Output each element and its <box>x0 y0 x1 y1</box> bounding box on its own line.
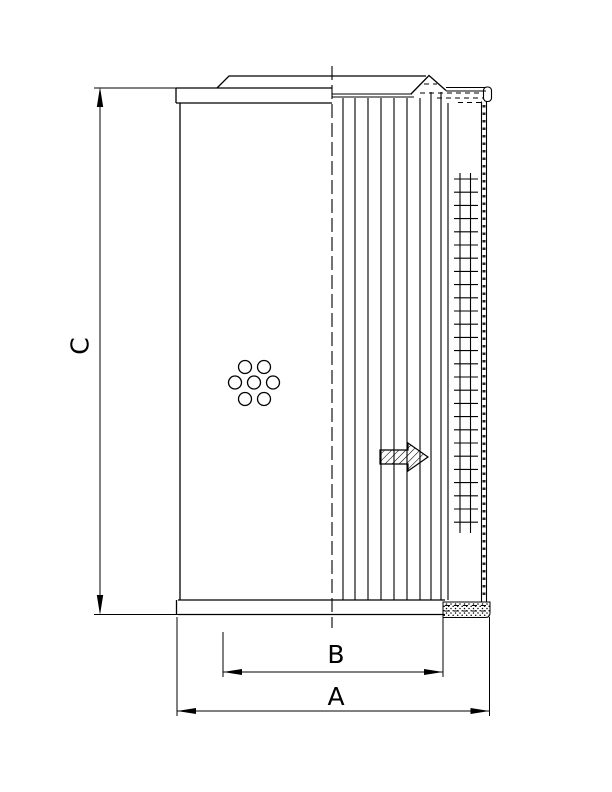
support-mesh-grid <box>454 173 478 533</box>
top-cap-lid <box>217 76 426 88</box>
outer-wrap-strip <box>482 102 487 603</box>
drain-holes <box>229 361 280 406</box>
dim-c-arrow-up-icon <box>97 87 103 107</box>
filter-element-technical-drawing: C <box>0 0 612 792</box>
drain-hole <box>258 393 271 406</box>
filter-body <box>176 66 492 628</box>
dimension-c: C <box>66 87 179 615</box>
top-cap-crimp-peak <box>411 76 446 95</box>
collar-rim-end <box>484 87 492 102</box>
bottom-cap-wrap-block <box>443 602 490 618</box>
bottom-end-cap <box>177 600 491 618</box>
dimension-b: B <box>223 617 443 677</box>
pleated-media <box>343 92 448 600</box>
dim-a-arrow-right-icon <box>471 708 490 714</box>
dim-b-arrow-right-icon <box>424 669 443 675</box>
top-end-cap <box>176 76 492 104</box>
drawing-page: C <box>0 0 612 792</box>
drain-hole <box>258 361 271 374</box>
dim-b-arrow-left-icon <box>223 669 242 675</box>
flow-direction-arrow-icon <box>380 443 428 471</box>
dim-c-label: C <box>66 337 95 354</box>
drain-hole <box>267 376 280 389</box>
dim-a-arrow-left-icon <box>177 708 196 714</box>
dim-a-label: A <box>327 682 344 711</box>
drain-hole <box>229 376 242 389</box>
dim-c-arrow-down-icon <box>97 595 103 615</box>
drain-hole <box>239 361 252 374</box>
dim-b-label: B <box>327 640 344 669</box>
drain-hole <box>239 393 252 406</box>
drain-hole <box>248 376 261 389</box>
